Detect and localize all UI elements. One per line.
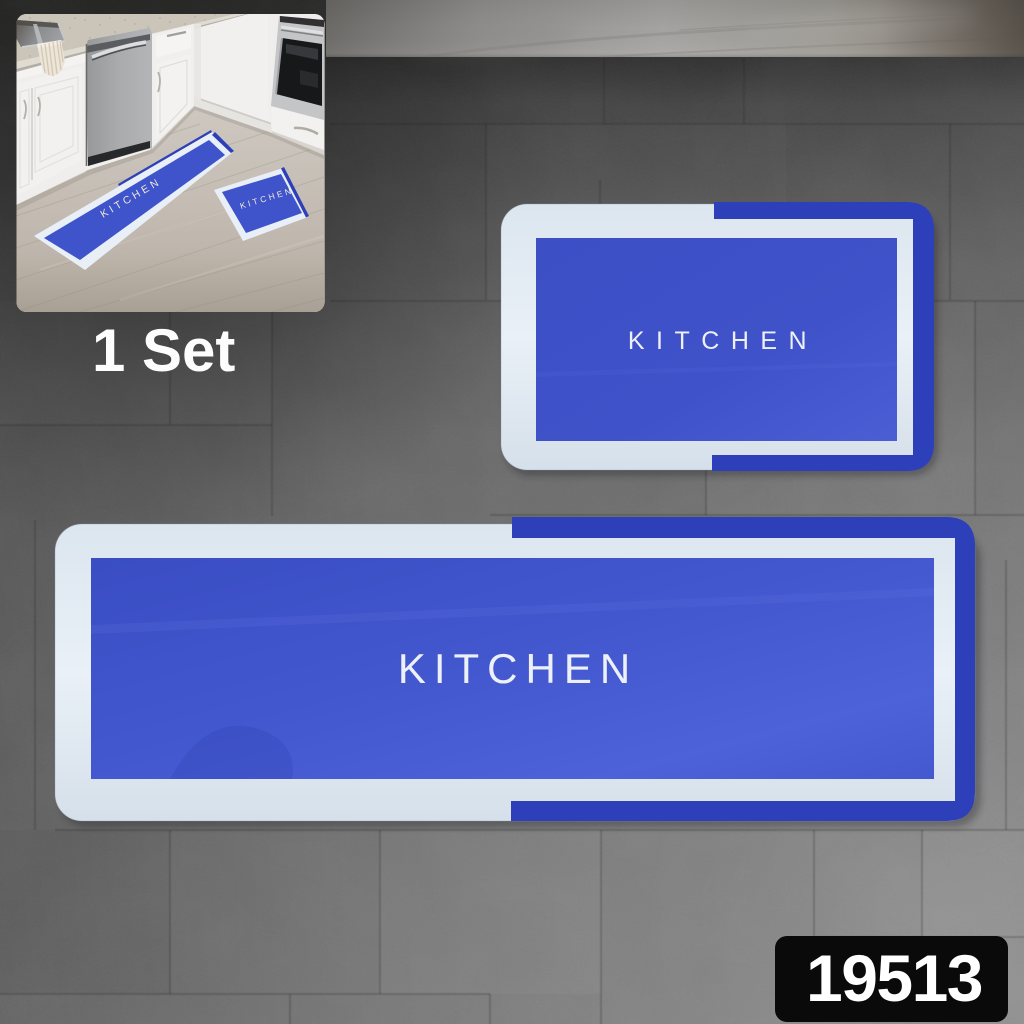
svg-text:19513: 19513	[806, 941, 982, 1015]
svg-text:KITCHEN: KITCHEN	[628, 327, 818, 355]
svg-text:1 Set: 1 Set	[92, 317, 235, 384]
svg-text:KITCHEN: KITCHEN	[398, 645, 638, 692]
